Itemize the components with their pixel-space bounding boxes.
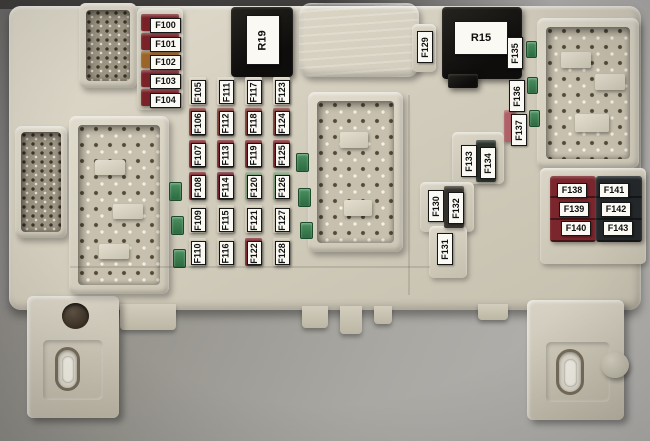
fuse-label-f122: F122 (247, 241, 262, 265)
fuse-label-f132-text: F132 (452, 198, 461, 219)
green-fuse (300, 222, 313, 239)
fuse-label-f133-text: F133 (465, 151, 474, 172)
fuse-label-f107-text: F107 (194, 145, 203, 166)
fuse-label-f131: F131 (437, 233, 453, 265)
fuse-label-f123: F123 (275, 80, 290, 104)
fuse-label-f113: F113 (219, 143, 234, 167)
bottom-tab (120, 304, 176, 330)
fuse-label-f126: F126 (275, 175, 290, 199)
fuse-label-f129-text: F129 (421, 37, 430, 58)
fuse-label-f141: F141 (599, 183, 629, 198)
connector-left-small (15, 126, 67, 238)
fuse-label-f102: F102 (150, 55, 181, 70)
fuse-label-f137: F137 (511, 114, 527, 146)
fuse-label-f101: F101 (150, 37, 181, 52)
fuse-label-f108-text: F108 (194, 177, 203, 198)
fuse-label-f119: F119 (247, 143, 262, 167)
fuse-label-f108: F108 (191, 175, 206, 199)
fuse-label-f114: F114 (219, 175, 234, 199)
fuse-label-f111-text: F111 (222, 82, 231, 102)
fuse-label-f126-text: F126 (278, 177, 287, 198)
mount-knob-right (601, 352, 629, 378)
fuse-label-f116: F116 (219, 241, 234, 265)
relay-r19-label: R19 (246, 15, 280, 65)
fuse-label-f120-text: F120 (250, 177, 259, 198)
mold-seam (408, 95, 410, 295)
relay-r19-text: R19 (258, 30, 269, 50)
fuse-label-f136: F136 (509, 80, 525, 112)
fuse-label-f132: F132 (448, 192, 464, 224)
fuse-label-f128-text: F128 (278, 243, 287, 264)
fuse-label-f112: F112 (219, 111, 234, 135)
green-fuse (526, 41, 537, 58)
fuse-label-f140: F140 (561, 221, 591, 236)
connector-center-pins (317, 101, 394, 243)
green-fuse (298, 188, 311, 207)
bottom-tab (340, 306, 362, 334)
fuse-label-f124: F124 (275, 111, 290, 135)
fuse-label-f135-text: F135 (511, 43, 520, 64)
fuse-label-f134: F134 (480, 147, 496, 179)
fuse-label-f139: F139 (559, 202, 589, 217)
fuse-label-f117-text: F117 (250, 82, 259, 102)
green-fuse (527, 77, 538, 94)
fuse-label-f121-text: F121 (250, 210, 259, 231)
fuse-label-f119-text: F119 (250, 145, 259, 165)
fuse-label-f124-text: F124 (278, 113, 287, 134)
fuse-box-photo: R19 R15 F129 F135 F136 F137 F133 F134 F1… (0, 0, 650, 441)
fuse-label-f106-text: F106 (194, 113, 203, 134)
fuse-label-f130: F130 (428, 190, 444, 222)
fuse-label-f129: F129 (417, 31, 433, 63)
fuse-label-f138: F138 (557, 183, 587, 198)
fuse-label-f112-text: F112 (222, 113, 231, 133)
bottom-tab (374, 306, 392, 324)
fuse-label-f118-text: F118 (250, 113, 259, 133)
fuse-label-f136-text: F136 (513, 86, 522, 107)
mount-hole-left (62, 303, 89, 329)
fuse-label-f134-text: F134 (484, 153, 493, 174)
connector-right-large (537, 18, 639, 168)
fuse-label-f131-text: F131 (441, 239, 450, 260)
connector-top-left (79, 3, 137, 88)
bottom-tab (478, 304, 508, 320)
fuse-label-f114-text: F114 (222, 177, 231, 197)
green-fuse (529, 110, 540, 127)
fuse-label-f109-text: F109 (194, 210, 203, 231)
fuse-label-f133: F133 (461, 145, 477, 177)
fuse-label-f116-text: F116 (222, 243, 231, 263)
green-fuse (171, 216, 184, 235)
fuse-label-f120: F120 (247, 175, 262, 199)
fuse-label-f118: F118 (247, 111, 262, 135)
connector-right-large-pins (546, 27, 630, 159)
fuse-label-f122-text: F122 (250, 243, 259, 264)
fuse-label-f125: F125 (275, 143, 290, 167)
fuse-label-f113-text: F113 (222, 145, 231, 165)
fuse-label-f123-text: F123 (278, 82, 287, 103)
fuse-label-f104: F104 (150, 93, 181, 108)
connector-center (308, 92, 403, 252)
relay-r15-foot (448, 74, 478, 88)
fuse-label-f110-text: F110 (194, 243, 203, 263)
bottom-tab (302, 306, 328, 328)
fuse-label-f115-text: F115 (222, 210, 231, 230)
green-fuse (169, 182, 182, 201)
mount-slot-left-hole (62, 356, 74, 383)
fuse-label-f137-text: F137 (515, 120, 524, 141)
relay-r19: R19 (231, 7, 293, 77)
green-fuse (296, 153, 309, 172)
fuse-label-f111: F111 (219, 80, 234, 104)
fuse-label-f105: F105 (191, 80, 206, 104)
fuse-label-f127-text: F127 (278, 210, 287, 231)
fuse-label-f103: F103 (150, 74, 181, 89)
fuse-label-f117: F117 (247, 80, 262, 104)
fuse-label-f127: F127 (275, 208, 290, 232)
fuse-label-f107: F107 (191, 143, 206, 167)
relay-r15-label: R15 (454, 21, 508, 55)
fuse-label-f109: F109 (191, 208, 206, 232)
fuse-label-f100: F100 (150, 18, 181, 33)
relay-cover (299, 3, 419, 77)
fuse-label-f128: F128 (275, 241, 290, 265)
fuse-label-f130-text: F130 (432, 196, 441, 217)
connector-left-small-pins (21, 132, 61, 232)
fuse-label-f142: F142 (601, 202, 631, 217)
relay-r15-text: R15 (471, 33, 491, 44)
mold-seam (70, 266, 430, 268)
fuse-label-f143: F143 (603, 221, 633, 236)
fuse-label-f110: F110 (191, 241, 206, 265)
fuse-label-f105-text: F105 (194, 82, 203, 103)
fuse-label-f135: F135 (507, 37, 523, 69)
mount-slot-right-hole (564, 359, 577, 387)
fuse-label-f106: F106 (191, 111, 206, 135)
fuse-label-f125-text: F125 (278, 145, 287, 166)
fuse-label-f121: F121 (247, 208, 262, 232)
fuse-label-f115: F115 (219, 208, 234, 232)
connector-top-left-pins (86, 10, 130, 81)
